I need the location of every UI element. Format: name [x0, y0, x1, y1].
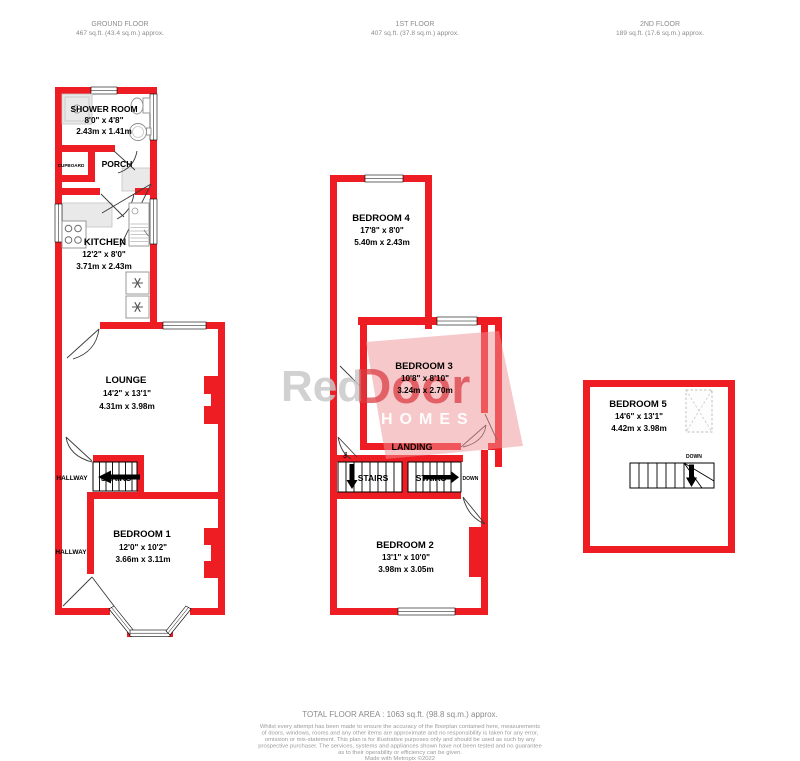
room-dim-metric-bedroom4: 5.40m x 2.43m	[354, 238, 410, 247]
total-floor-area: TOTAL FLOOR AREA : 1063 sq.ft. (98.8 sq.…	[302, 710, 498, 719]
label-stairs-ground: STAIRS	[101, 473, 132, 483]
appliance-icon	[126, 296, 149, 318]
disclaimer-line: prospective purchaser. The services, sys…	[258, 744, 542, 750]
label-stairs-up: STAIRS	[358, 473, 389, 483]
room-label-bedroom3: BEDROOM 3	[395, 361, 453, 372]
room-label-bedroom4: BEDROOM 4	[352, 213, 410, 224]
room-dim-metric-lounge: 4.31m x 3.98m	[99, 402, 155, 411]
first-floor-title: 1ST FLOOR	[396, 21, 435, 28]
room-label-bedroom1: BEDROOM 1	[113, 529, 171, 540]
first-floor-area: 407 sq.ft. (37.8 sq.m.) approx.	[371, 30, 459, 37]
staircase-second	[630, 463, 714, 488]
floor-headers: GROUND FLOOR 467 sq.ft. (43.4 sq.m.) app…	[76, 21, 704, 37]
fridge-icon	[129, 203, 149, 246]
room-dim-imperial-lounge: 14'2" x 13'1"	[103, 389, 151, 398]
room-dim-metric-bedroom3: 3.24m x 2.70m	[397, 386, 453, 395]
sink-icon	[130, 124, 152, 141]
room-dim-imperial-bedroom5: 14'6" x 13'1"	[615, 412, 663, 421]
room-dim-imperial-bedroom3: 10'8" x 8'10"	[401, 374, 449, 383]
second-floor-area: 189 sq.ft. (17.6 sq.m.) approx.	[616, 30, 704, 37]
room-dim-imperial-bedroom1: 12'0" x 10'2"	[119, 543, 167, 552]
room-label-bedroom2: BEDROOM 2	[376, 540, 434, 551]
room-label-lounge: LOUNGE	[106, 375, 147, 386]
room-dim-imperial-bedroom4: 17'8" x 8'0"	[360, 226, 404, 235]
room-dim-imperial-bedroom2: 13'1" x 10'0"	[382, 553, 430, 562]
room-label-kitchen: KITCHEN	[84, 237, 126, 248]
label-hallway-upper: HALLWAY	[56, 475, 88, 482]
ground-floor-area: 467 sq.ft. (43.4 sq.m.) approx.	[76, 30, 164, 37]
disclaimer-line: Whilst every attempt has been made to en…	[260, 724, 540, 730]
appliance-icon	[126, 272, 149, 294]
ground-floor-title: GROUND FLOOR	[91, 21, 148, 28]
skylight-icon	[686, 390, 712, 432]
room-dim-metric-kitchen: 3.71m x 2.43m	[76, 262, 132, 271]
label-hallway-lower: HALLWAY	[55, 549, 87, 556]
label-down-second: DOWN	[686, 454, 702, 460]
disclaimer-line: of doors, windows, rooms and any other i…	[262, 731, 539, 737]
room-dim-metric-shower-room: 2.43m x 1.41m	[76, 127, 132, 136]
watermark: Red Door HOMES	[281, 331, 523, 459]
room-label-bedroom5: BEDROOM 5	[609, 399, 667, 410]
label-down-first: DOWN	[463, 476, 479, 482]
disclaimer-line: omission or mis-statement. This plan is …	[265, 737, 535, 743]
watermark-text-homes: HOMES	[381, 411, 475, 428]
label-stairs-down: STAIRS	[416, 473, 447, 483]
label-porch: PORCH	[102, 159, 133, 169]
stairs-direction-arrow	[350, 464, 355, 481]
room-dim-metric-bedroom2: 3.98m x 3.05m	[378, 565, 434, 574]
room-dim-metric-bedroom5: 4.42m x 3.98m	[611, 424, 667, 433]
label-landing: LANDING	[392, 442, 433, 452]
room-label-shower-room: SHOWER ROOM	[70, 104, 137, 114]
footer: TOTAL FLOOR AREA : 1063 sq.ft. (98.8 sq.…	[258, 710, 542, 761]
room-dim-imperial-kitchen: 12'2" x 8'0"	[82, 250, 126, 259]
room-dim-metric-bedroom1: 3.66m x 3.11m	[115, 555, 170, 564]
label-cupboard: CUPBOARD	[58, 163, 85, 168]
second-floor-title: 2ND FLOOR	[640, 21, 680, 28]
floorplan-canvas: GROUND FLOOR 467 sq.ft. (43.4 sq.m.) app…	[0, 0, 800, 761]
room-dim-imperial-shower-room: 8'0" x 4'8"	[85, 116, 124, 125]
watermark-text-red: Red	[281, 362, 364, 411]
stove-icon	[62, 221, 86, 248]
metropix-credit: Made with Metropix ©2022	[365, 755, 435, 761]
